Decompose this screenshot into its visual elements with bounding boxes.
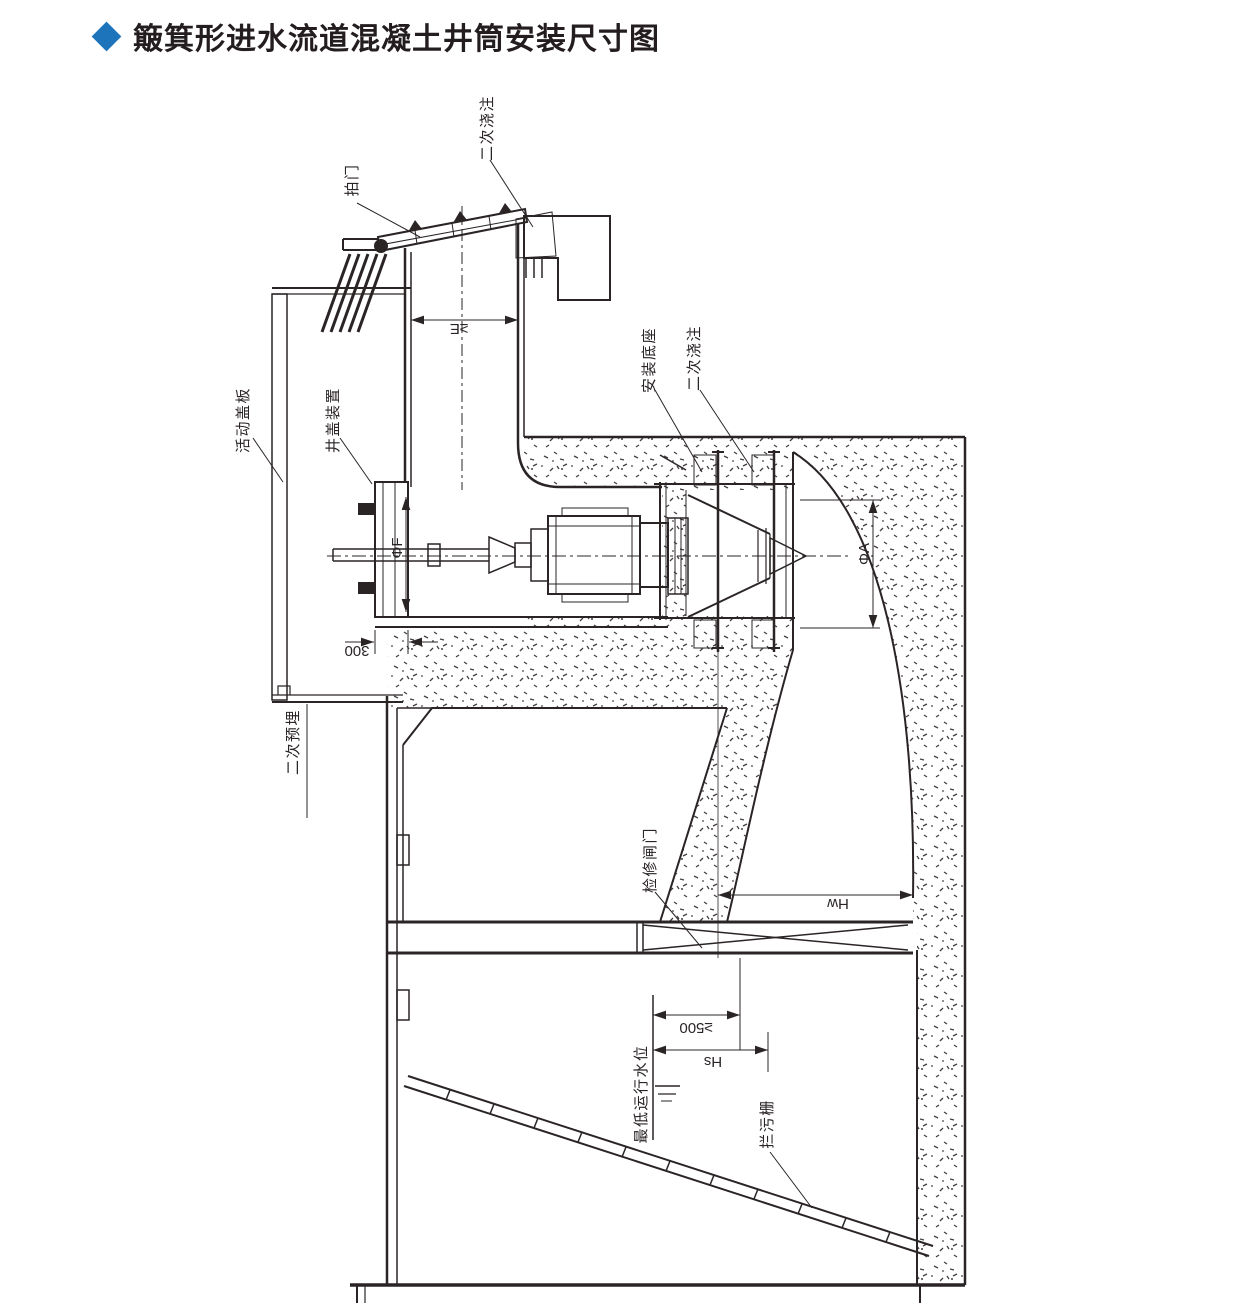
label-lowest-water-level: 最低运行水位 bbox=[633, 1044, 650, 1143]
label-mounting-base: 安装底座 bbox=[641, 327, 658, 393]
dim-cover-gap: 300 bbox=[344, 642, 369, 659]
dim-flange-dia: ΦF bbox=[389, 537, 406, 558]
installation-drawing: ≥E ΦF ΦA 300 Hw ≥500 Hs 拍门 二次浇注 活动盖板 井盖装… bbox=[0, 0, 1258, 1310]
label-secondary-embedment: 二次预埋 bbox=[285, 709, 302, 775]
label-flap-gate: 拍门 bbox=[344, 163, 361, 196]
label-movable-cover: 活动盖板 bbox=[234, 387, 252, 453]
title-text: 簸箕形进水流道混凝土井筒安装尺寸图 bbox=[133, 14, 660, 58]
label-trash-rack: 拦污栅 bbox=[759, 1099, 776, 1149]
flap-gate-assembly bbox=[322, 203, 556, 332]
label-secondary-pour-top: 二次浇注 bbox=[479, 95, 496, 161]
dim-hw: Hw bbox=[827, 895, 849, 912]
label-secondary-pour-base: 二次浇注 bbox=[686, 325, 703, 391]
movable-cover-plate-section bbox=[272, 294, 287, 700]
page-title: 簸箕形进水流道混凝土井筒安装尺寸图 bbox=[96, 14, 660, 58]
label-maintenance-gate: 检修闸门 bbox=[642, 827, 659, 893]
dim-bell-dia: ΦA bbox=[856, 543, 873, 565]
label-well-cover-device: 井盖装置 bbox=[325, 387, 342, 453]
dim-hs: Hs bbox=[704, 1053, 722, 1070]
dim-channel-width: ≥E bbox=[450, 320, 468, 337]
page: { "title": { "text": "簸箕形进水流道混凝土井筒安装尺寸图"… bbox=[0, 0, 1258, 1310]
title-diamond-icon bbox=[92, 21, 122, 51]
dim-min-clearance: ≥500 bbox=[679, 1019, 712, 1036]
